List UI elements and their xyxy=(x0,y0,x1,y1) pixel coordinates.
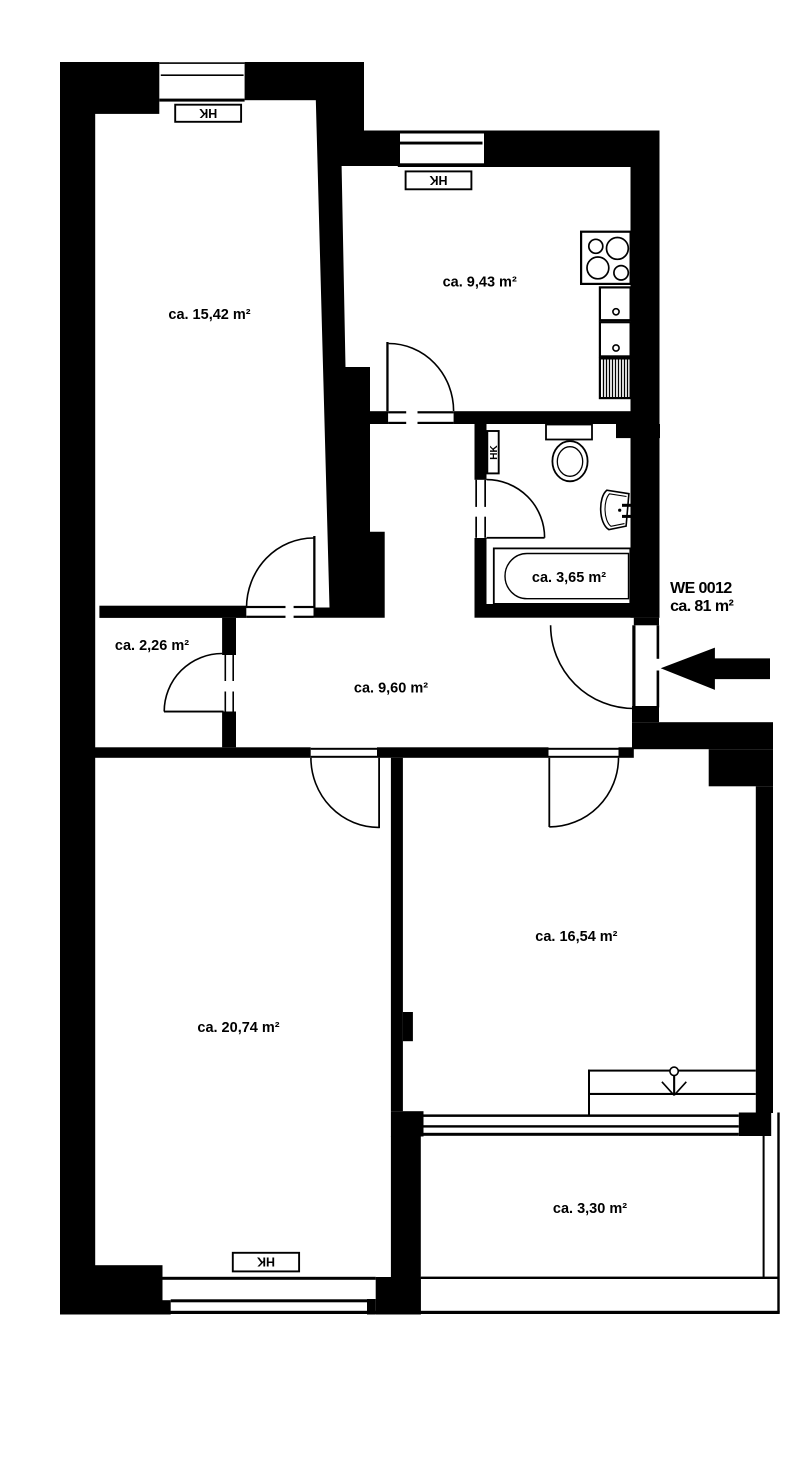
svg-text:HK: HK xyxy=(489,445,500,460)
svg-text:ca. 9,60 m²: ca. 9,60 m² xyxy=(354,681,428,697)
svg-text:ca. 81 m²: ca. 81 m² xyxy=(670,598,733,615)
svg-text:ca. 15,42 m²: ca. 15,42 m² xyxy=(168,307,250,323)
svg-text:ca. 3,30 m²: ca. 3,30 m² xyxy=(553,1201,627,1217)
svg-text:ca. 9,43 m²: ca. 9,43 m² xyxy=(443,274,517,290)
svg-text:ca. 2,26 m²: ca. 2,26 m² xyxy=(115,638,189,654)
svg-text:ca. 20,74 m²: ca. 20,74 m² xyxy=(197,1020,279,1036)
svg-text:ca. 3,65 m²: ca. 3,65 m² xyxy=(532,570,606,586)
svg-text:HK: HK xyxy=(199,106,217,120)
svg-text:ca. 16,54 m²: ca. 16,54 m² xyxy=(535,929,617,945)
svg-text:HK: HK xyxy=(429,173,447,187)
svg-text:HK: HK xyxy=(257,1255,275,1269)
svg-text:WE 0012: WE 0012 xyxy=(670,580,732,597)
